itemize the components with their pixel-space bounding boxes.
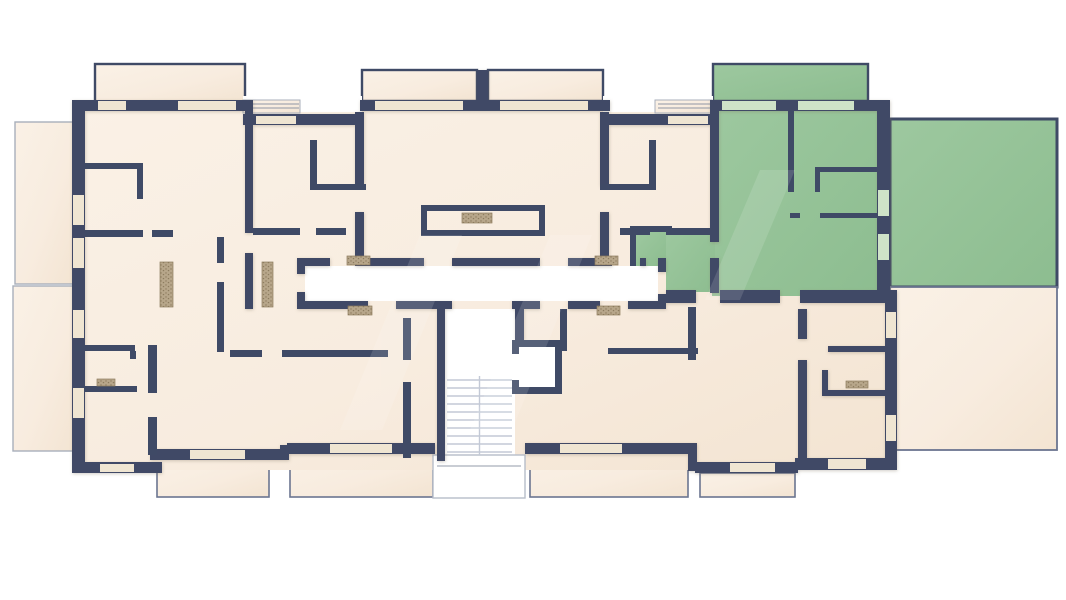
unit-b-hotspot[interactable] — [253, 111, 355, 258]
balcony-bottom-4 — [700, 473, 795, 497]
terrace-right-lower — [890, 287, 1057, 450]
unit-d-green-hotspot[interactable] — [715, 107, 877, 293]
unit-a-hotspot[interactable] — [85, 111, 245, 461]
balcony-top-middle-right — [488, 70, 603, 101]
unit-f-hotspot[interactable] — [524, 309, 798, 443]
corridor-floor — [305, 266, 658, 301]
entrance-porch — [433, 455, 525, 498]
unit-e-hotspot[interactable] — [305, 309, 437, 443]
balcony-top-right-green — [713, 64, 868, 101]
unit-c-hotspot[interactable] — [609, 111, 710, 258]
unit-g-hotspot[interactable] — [807, 303, 885, 458]
balcony-top-middle-left — [362, 70, 477, 101]
shaft-hatch — [262, 262, 273, 307]
balcony-top-left — [95, 64, 245, 102]
shaft-hatch — [462, 213, 492, 223]
terrace-left-upper — [15, 122, 75, 284]
cutout-below-unit-a — [72, 473, 150, 513]
floor-plan-canvas — [0, 0, 1066, 600]
terrace-left-lower — [13, 286, 77, 451]
green-terrace-hotspot[interactable] — [890, 119, 1057, 287]
floor-plan-svg — [0, 0, 1066, 600]
